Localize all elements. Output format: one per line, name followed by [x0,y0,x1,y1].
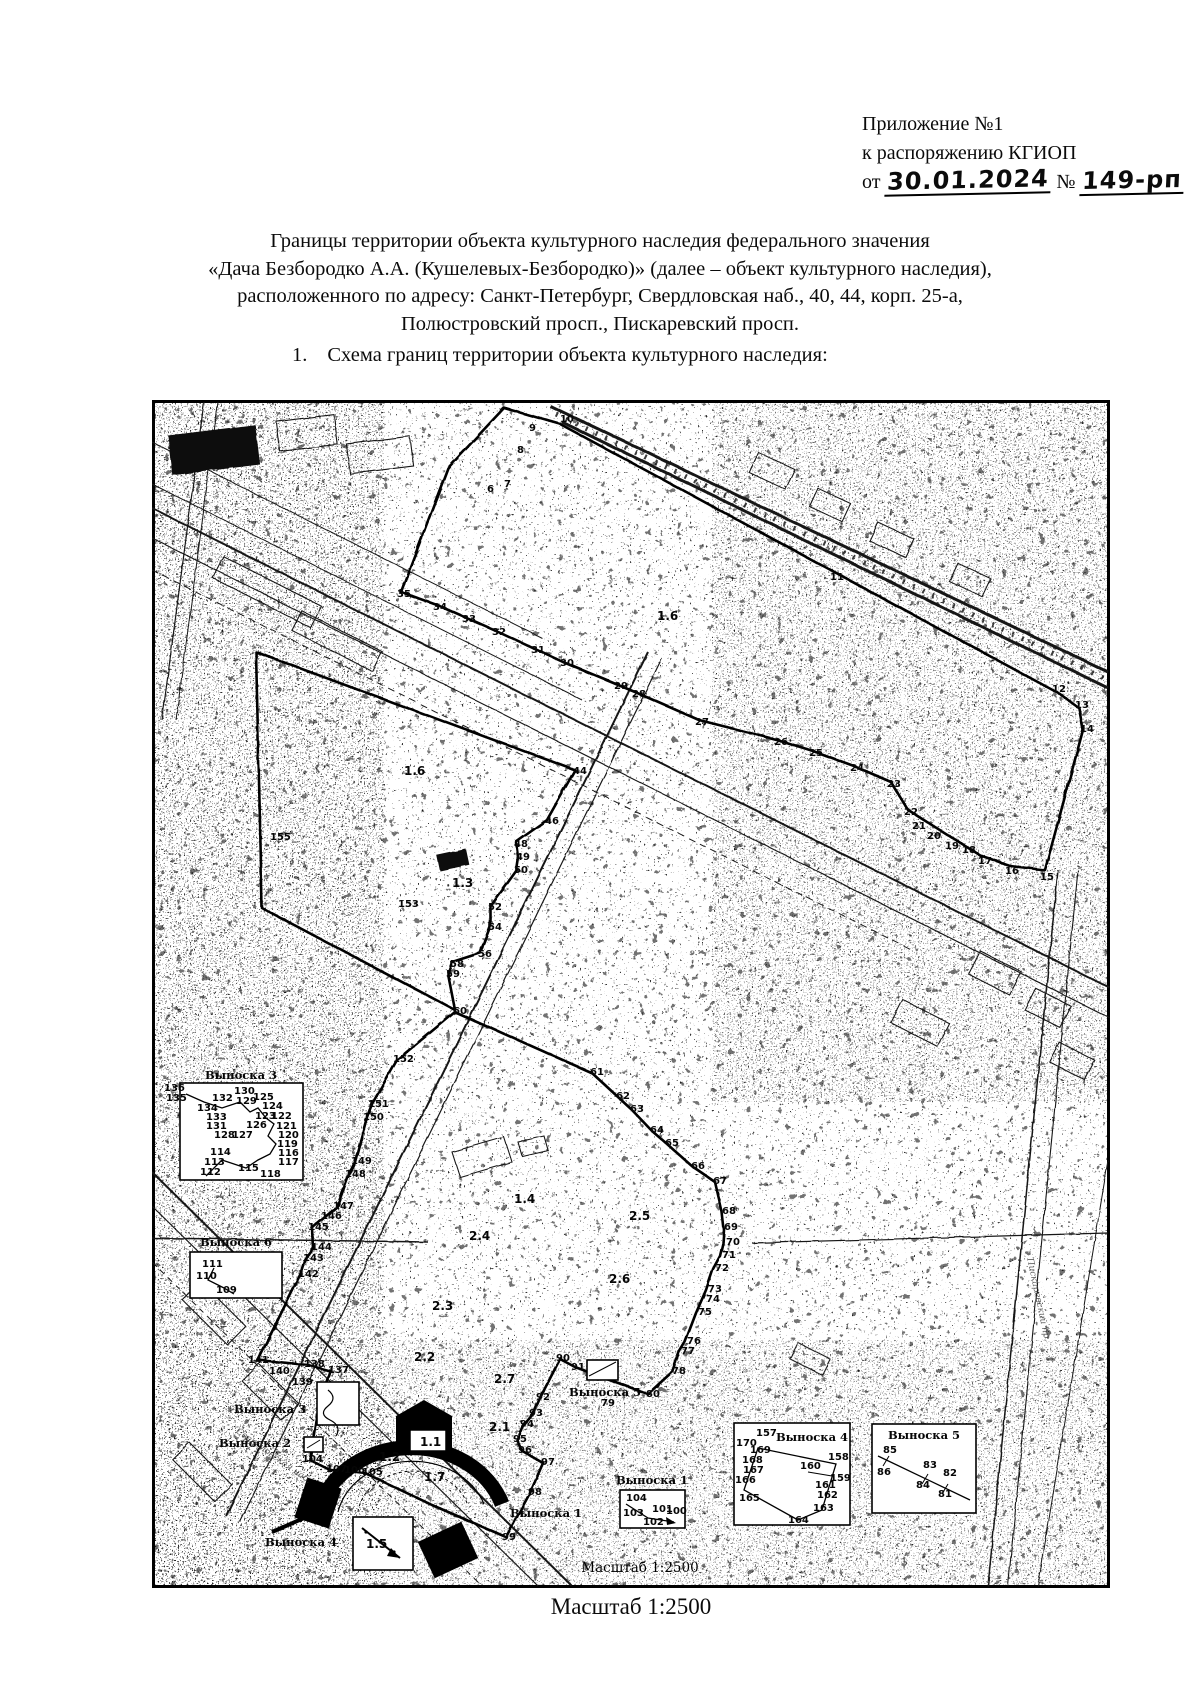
map-label: 1.5 [366,1537,387,1551]
from-label: от [862,171,880,193]
map-label: 71 [722,1250,736,1261]
map-label: 83 [923,1460,937,1471]
map-label: 100 [666,1506,687,1517]
map-label: 35 [397,589,411,600]
map-label: 1.2 [379,1450,400,1464]
map-label: 48 [514,839,528,850]
map-label: 21 [912,821,926,832]
map-label: 65 [665,1138,679,1149]
appendix-header: Приложение №1 к распоряжению КГИОП от 30… [862,110,1184,197]
map-label: 147 [333,1201,354,1212]
map-label: 96 [518,1445,532,1456]
map-label: 105 [362,1467,383,1478]
map-label: 9 [529,423,536,434]
map-label: 54 [488,922,502,933]
map-label: 92 [536,1392,550,1403]
map-figure: 6789101112131415161718192021222324252627… [152,400,1110,1588]
map-label: 82 [943,1468,957,1479]
map-label: 144 [311,1242,332,1253]
map-svg: 6789101112131415161718192021222324252627… [152,400,1110,1588]
map-label: 46 [545,816,559,827]
map-label: 30 [560,658,574,669]
map-label: 145 [308,1222,329,1233]
map-label: 104 [302,1454,323,1465]
map-label: 67 [713,1176,727,1187]
map-label: 1.7 [424,1470,445,1484]
map-label: 49 [516,852,530,863]
map-label: 90 [556,1353,570,1364]
map-label: 14 [1080,724,1094,735]
map-label: 31 [531,645,545,656]
map-label: 69 [724,1222,738,1233]
map-label: 94 [520,1419,534,1430]
map-label: 11 [830,572,844,583]
map-label: Выноска 5 [888,1428,960,1442]
map-label: 27 [695,717,709,728]
map-label: 157 [756,1428,777,1439]
map-label: Выноска 1 [510,1506,582,1520]
map-label: 74 [706,1294,720,1305]
map-label: 162 [817,1490,838,1501]
map-label: 23 [887,779,901,790]
map-label: 33 [462,614,476,625]
map-label: 7 [504,479,511,490]
map-label: 22 [904,807,918,818]
map-label: 118 [260,1169,281,1180]
map-label: 138 [304,1359,325,1370]
map-label: 117 [278,1157,299,1168]
map-label: 68 [722,1206,736,1217]
map-label: 19 [945,841,959,852]
map-label: 52 [488,902,502,913]
map-label: 79 [601,1398,615,1409]
map-label: 151 [368,1099,389,1110]
map-label: Выноска 5 [569,1385,641,1399]
map-label: 75 [698,1307,712,1318]
map-label: 137 [328,1365,349,1376]
map-label: 97 [541,1457,555,1468]
map-label: 61 [590,1067,604,1078]
map-label: 143 [303,1253,324,1264]
title-line1: Границы территории объекта культурного н… [100,228,1100,256]
map-label: 2.7 [494,1372,515,1386]
map-label: 149 [351,1156,372,1167]
section-number: 1. [292,344,307,366]
map-label: 26 [774,737,788,748]
map-label: 95 [513,1434,527,1445]
map-label: 1.6 [657,609,678,623]
map-label: 152 [393,1054,414,1065]
title-line3: расположенного по адресу: Санкт-Петербур… [100,283,1100,311]
map-label: 165 [739,1493,760,1504]
handwritten-date: 30.01.2024 [885,166,1052,197]
map-label: 104 [626,1493,647,1504]
appendix-line3: от 30.01.2024 № 149-рп [862,168,1184,197]
map-label: 91 [571,1362,585,1373]
map-label: 34 [433,602,447,613]
map-label: Выноска 4 [265,1535,337,1549]
map-label: 127 [232,1130,253,1141]
map-label: 135 [166,1093,187,1104]
document-title: Границы территории объекта культурного н… [100,228,1100,339]
map-label: Выноска 6 [200,1235,272,1249]
map-label: 13 [1075,700,1089,711]
title-line4: Полюстровский просп., Пискаревский просп… [100,311,1100,339]
map-label: 1.4 [514,1192,535,1206]
map-label: 84 [916,1480,930,1491]
map-label: 18 [962,845,976,856]
map-label: 98 [528,1487,542,1498]
map-label: 60 [453,1006,467,1017]
map-label: 44 [573,766,587,777]
map-label: 80 [646,1389,660,1400]
map-label: 112 [200,1167,221,1178]
map-label: Выноска 3 [234,1402,306,1416]
map-label: Выноска 4 [776,1430,848,1444]
map-label: 24 [850,763,864,774]
map-label: 1.3 [452,876,473,890]
title-line2: «Дача Безбородко А.А. (Кушелевых-Безборо… [100,256,1100,284]
section-text: Схема границ территории объекта культурн… [327,344,827,366]
map-label: 164 [788,1515,809,1526]
map-label: Выноска 3 [205,1068,277,1082]
map-label: 62 [616,1091,630,1102]
map-label: 111 [202,1259,223,1270]
map-label: 2.5 [629,1209,650,1223]
map-label: 28 [632,689,646,700]
map-label: 160 [800,1461,821,1472]
map-label: 59 [446,969,460,980]
map-label: 146 [321,1211,342,1222]
map-label: 110 [196,1271,217,1282]
map-label: 72 [715,1263,729,1274]
map-label: 148 [345,1169,366,1180]
map-label: 32 [492,627,506,638]
map-label: 25 [809,748,823,759]
map-label: 77 [681,1346,695,1357]
map-label: 2.4 [469,1229,490,1243]
map-label: 12 [1052,684,1066,695]
map-label: 158 [828,1452,849,1463]
map-label: 163 [813,1503,834,1514]
map-label: 64 [650,1125,664,1136]
map-label: 99 [502,1532,516,1543]
map-label: 17 [978,856,992,867]
map-label: 15 [1040,872,1054,883]
map-label: 166 [735,1475,756,1486]
map-label: 150 [363,1112,384,1123]
map-label: 115 [238,1163,259,1174]
map-label: 63 [630,1104,644,1115]
map-label: 86 [877,1467,891,1478]
map-label: 2.3 [432,1299,453,1313]
document-page: Приложение №1 к распоряжению КГИОП от 30… [0,0,1200,1697]
map-label: 1.6 [404,764,425,778]
map-label: 16 [1005,866,1019,877]
map-label: 153 [398,899,419,910]
map-label: 2.6 [609,1272,630,1286]
map-label: 102 [643,1517,664,1528]
number-sign: № [1056,171,1075,193]
map-label: 141 [248,1355,269,1366]
map-label: Масштаб 1:2500 [581,1560,698,1576]
appendix-line1: Приложение №1 [862,110,1184,139]
map-label: 93 [529,1408,543,1419]
map-label: Выноска 1 [616,1473,688,1487]
map-label: 85 [883,1445,897,1456]
map-label: 139 [292,1377,313,1388]
map-label: 56 [478,949,492,960]
map-label: 2.2 [414,1350,435,1364]
map-label: 142 [298,1269,319,1280]
handwritten-number: 149-рп [1080,167,1185,196]
map-label: 155 [270,832,291,843]
map-label: 81 [938,1489,952,1500]
map-label: 1.1 [420,1435,441,1449]
map-label: 109 [216,1285,237,1296]
map-label: 140 [269,1366,290,1377]
appendix-line2: к распоряжению КГИОП [862,139,1184,168]
map-label: 8 [517,445,524,456]
map-label: 50 [514,865,528,876]
map-label: 70 [726,1237,740,1248]
map-label: 2.1 [489,1420,510,1434]
section-heading: 1.Схема границ территории объекта культу… [292,344,828,367]
map-label: 66 [691,1161,705,1172]
scale-caption: Масштаб 1:2500 [152,1594,1110,1620]
map-label: 10 [560,414,574,425]
map-label: 103 [623,1508,644,1519]
map-label: 20 [927,831,941,842]
map-label: 6 [487,484,494,495]
map-label: 78 [672,1366,686,1377]
map-label: 29 [614,681,628,692]
